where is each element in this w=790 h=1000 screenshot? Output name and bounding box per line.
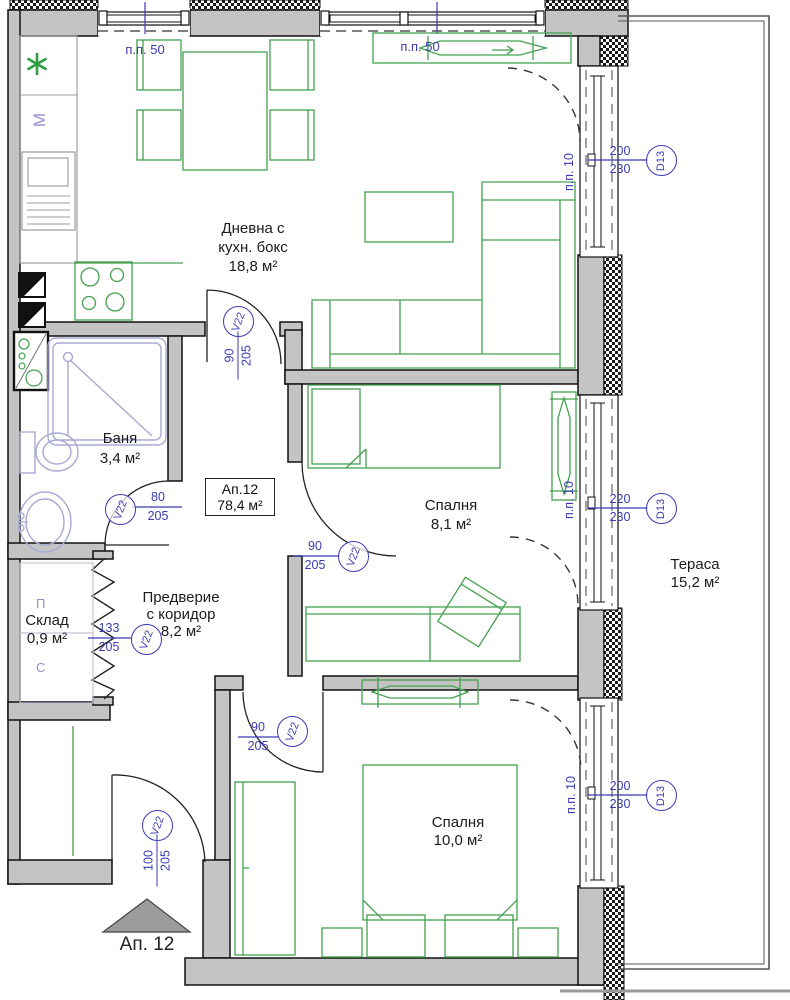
storage-washer-mark: П [36, 596, 45, 611]
room-label-living-1: Дневна с [203, 220, 303, 237]
v22-bedroom1-width: 90 [293, 539, 337, 553]
entrance-arrow [103, 899, 190, 932]
panel-label-1: п.п. 10 [562, 144, 578, 200]
room-label-bedroom2: Спалня [408, 814, 508, 831]
v22-bedroom1-height: 205 [293, 558, 337, 572]
v22-bath-height: 205 [136, 509, 180, 523]
d13-bedroom1-height: 230 [598, 510, 642, 524]
room-area-living: 18,8 м² [203, 258, 303, 275]
room-label-living-2: кухн. бокс [203, 239, 303, 256]
v22-bath-width: 80 [136, 490, 180, 504]
room-label-bath: Баня [70, 430, 170, 447]
v22-bedroom2-width: 90 [236, 720, 280, 734]
walls [8, 0, 628, 1000]
room-label-hallway-2: с коридор [131, 606, 231, 623]
dining-table-set [137, 40, 314, 170]
v22-storage-tag: V22 [131, 624, 162, 655]
coffee-table [365, 192, 453, 242]
d13-bedroom2-height: 230 [598, 797, 642, 811]
single-bed [308, 385, 500, 468]
room-area-bedroom2: 10,0 м² [408, 832, 508, 849]
room-label-storage: Склад [7, 612, 87, 629]
nightstand-right [518, 928, 558, 957]
room-area-storage: 0,9 м² [7, 630, 87, 647]
entrance-label: Ап. 12 [97, 934, 197, 956]
d13-bedroom1-width: 220 [598, 492, 642, 506]
v22-storage-width: 133 [88, 621, 130, 635]
v22-bedroom2-height: 205 [236, 739, 280, 753]
v22-entrance-dims: 100 205 [142, 835, 173, 887]
v22-bedroom1-tag: V22 [338, 541, 369, 572]
d13-living-width: 200 [598, 144, 642, 158]
double-bed [363, 765, 517, 957]
nightstand-left [322, 928, 362, 957]
d13-bedroom2-tag: D13 [646, 780, 677, 811]
desk-chair [438, 577, 506, 647]
apartment-number: Ап.12 [206, 481, 274, 497]
fridge [22, 152, 75, 230]
floor-plan: п.п. 50 п.п. 50 Дневна с кухн. бокс 18,8… [0, 0, 790, 1000]
d13-bedroom2-width: 200 [598, 779, 642, 793]
wardrobe [235, 782, 295, 955]
window-kitchen [98, 2, 190, 36]
room-label-hallway-1: Предверие [131, 589, 231, 606]
room-label-bedroom1: Спалня [401, 497, 501, 514]
panel-label-3: п.п. 10 [564, 767, 580, 823]
d13-bedroom1-tag: D13 [646, 493, 677, 524]
storage-dryer-mark: С [36, 660, 45, 675]
v22-hall-living-dims: 90 205 [223, 332, 254, 380]
v22-storage-height: 205 [88, 640, 130, 654]
room-area-bath: 3,4 м² [70, 450, 170, 467]
shower [48, 338, 166, 445]
freezer-asterisk-icon [28, 53, 47, 75]
living-furniture [137, 33, 575, 368]
window-label-kitchen: п.п. 50 [113, 42, 177, 57]
apartment-info-box: Ап.12 78,4 м² [205, 478, 275, 516]
room-area-bedroom1: 8,1 м² [401, 516, 501, 533]
window-living [320, 2, 545, 36]
v22-bath-tag: V22 [105, 494, 136, 525]
d13-living-height: 230 [598, 162, 642, 176]
room-area-terrace: 15,2 м² [645, 574, 745, 591]
kitchen-m-mark: М [30, 108, 54, 132]
sofa [312, 182, 575, 368]
window-label-living: п.п. 50 [388, 39, 452, 54]
panel-label-2: п.п. 10 [562, 472, 578, 528]
room-label-terrace: Тераса [645, 556, 745, 573]
v22-bedroom2-tag: V22 [277, 716, 308, 747]
stove [75, 262, 183, 320]
desk [306, 607, 520, 661]
shafts [14, 272, 48, 390]
terrace-unit-bedroom2 [580, 698, 618, 888]
apartment-area: 78,4 м² [206, 497, 274, 513]
d13-living-tag: D13 [646, 145, 677, 176]
